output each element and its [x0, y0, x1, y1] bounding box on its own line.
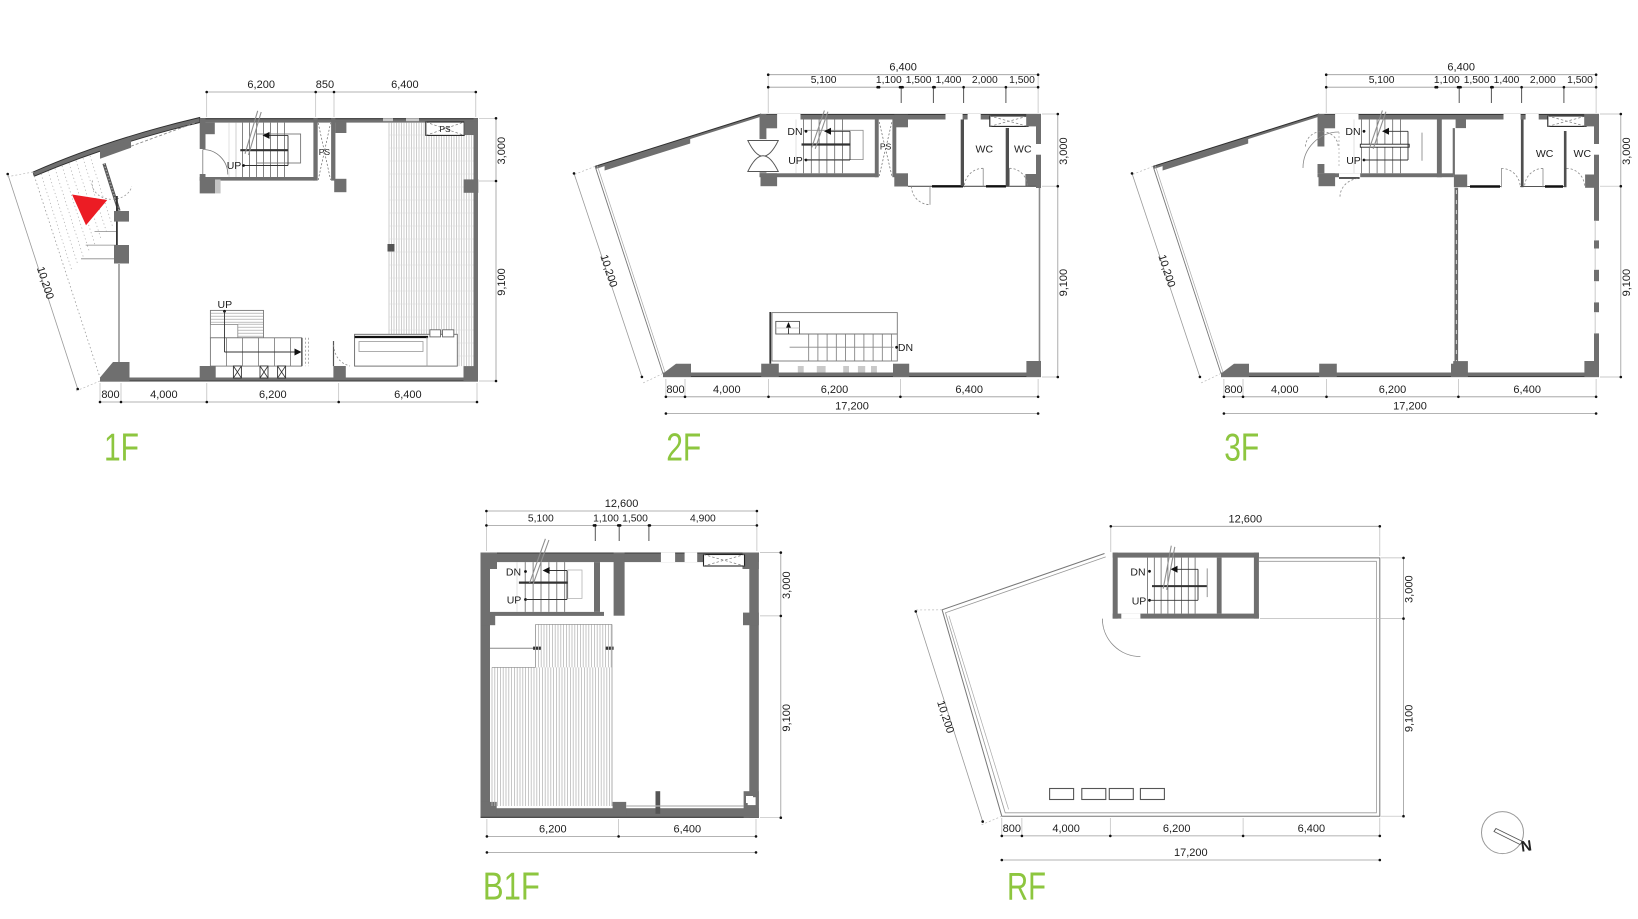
svg-text:1,500: 1,500: [622, 513, 648, 524]
svg-text:12,600: 12,600: [1228, 513, 1262, 525]
svg-text:4,900: 4,900: [690, 513, 716, 524]
svg-text:6,400: 6,400: [674, 823, 702, 835]
svg-text:1,500: 1,500: [1009, 75, 1035, 86]
svg-text:UP: UP: [227, 160, 242, 172]
svg-text:UP: UP: [507, 595, 522, 607]
svg-text:WC: WC: [1014, 144, 1032, 156]
svg-text:1,400: 1,400: [936, 75, 962, 86]
svg-text:17,200: 17,200: [1174, 847, 1208, 859]
svg-text:B1F: B1F: [483, 865, 540, 908]
svg-text:6,200: 6,200: [247, 79, 275, 91]
svg-text:2,000: 2,000: [972, 75, 998, 86]
svg-text:5,100: 5,100: [528, 513, 554, 524]
svg-text:PS: PS: [439, 124, 451, 134]
svg-text:9,100: 9,100: [781, 704, 793, 732]
svg-text:3,000: 3,000: [781, 571, 793, 599]
svg-text:2F: 2F: [666, 427, 701, 470]
svg-text:4,000: 4,000: [1271, 384, 1299, 396]
svg-text:1,500: 1,500: [906, 75, 932, 86]
svg-text:3,000: 3,000: [1404, 575, 1416, 603]
svg-text:DN: DN: [1345, 126, 1360, 138]
svg-text:3,000: 3,000: [1621, 137, 1633, 165]
svg-text:800: 800: [1224, 384, 1242, 396]
svg-text:UP: UP: [788, 155, 803, 167]
svg-text:800: 800: [101, 389, 119, 401]
svg-text:6,200: 6,200: [259, 389, 287, 401]
svg-text:1,100: 1,100: [876, 75, 902, 86]
svg-text:1,100: 1,100: [593, 513, 619, 524]
svg-text:12,600: 12,600: [605, 498, 639, 510]
svg-text:DN: DN: [506, 567, 521, 579]
svg-text:6,400: 6,400: [889, 62, 917, 74]
svg-text:WC: WC: [1536, 148, 1554, 160]
svg-text:RF: RF: [1007, 865, 1046, 908]
svg-text:6,200: 6,200: [1379, 384, 1407, 396]
svg-text:PS: PS: [880, 142, 892, 152]
svg-text:17,200: 17,200: [1393, 401, 1427, 413]
svg-text:DN: DN: [787, 126, 802, 138]
svg-text:800: 800: [1003, 823, 1021, 835]
svg-text:850: 850: [316, 79, 334, 91]
svg-text:4,000: 4,000: [1052, 823, 1080, 835]
svg-text:PS: PS: [319, 147, 331, 157]
svg-text:6,400: 6,400: [1298, 823, 1326, 835]
svg-text:3,000: 3,000: [1058, 137, 1070, 165]
svg-text:9,100: 9,100: [496, 268, 508, 296]
svg-text:17,200: 17,200: [835, 401, 869, 413]
svg-text:6,400: 6,400: [391, 79, 419, 91]
svg-text:6,400: 6,400: [955, 384, 983, 396]
svg-text:UP: UP: [1346, 155, 1361, 167]
svg-text:6,200: 6,200: [1163, 823, 1191, 835]
svg-text:3,000: 3,000: [496, 137, 508, 165]
svg-text:1,100: 1,100: [1434, 75, 1460, 86]
svg-text:UP: UP: [218, 299, 233, 311]
svg-text:3F: 3F: [1224, 427, 1259, 470]
svg-text:1,500: 1,500: [1567, 75, 1593, 86]
svg-text:DN: DN: [898, 342, 913, 354]
svg-text:5,100: 5,100: [811, 75, 837, 86]
svg-text:9,100: 9,100: [1404, 705, 1416, 733]
svg-text:DN: DN: [1130, 567, 1145, 579]
svg-text:6,200: 6,200: [821, 384, 849, 396]
svg-text:6,400: 6,400: [1447, 62, 1475, 74]
svg-text:6,400: 6,400: [394, 389, 422, 401]
svg-text:4,000: 4,000: [150, 389, 178, 401]
svg-text:6,200: 6,200: [539, 823, 567, 835]
svg-text:4,000: 4,000: [713, 384, 741, 396]
svg-text:UP: UP: [1132, 596, 1147, 608]
svg-text:9,100: 9,100: [1058, 269, 1070, 297]
svg-text:WC: WC: [1574, 148, 1592, 160]
svg-text:1,500: 1,500: [1464, 75, 1490, 86]
svg-text:WC: WC: [976, 144, 994, 156]
svg-text:800: 800: [666, 384, 684, 396]
svg-text:6,400: 6,400: [1513, 384, 1541, 396]
svg-text:1F: 1F: [104, 427, 139, 470]
svg-text:9,100: 9,100: [1621, 269, 1633, 297]
svg-text:5,100: 5,100: [1369, 75, 1395, 86]
svg-text:2,000: 2,000: [1530, 75, 1556, 86]
svg-text:1,400: 1,400: [1494, 75, 1520, 86]
